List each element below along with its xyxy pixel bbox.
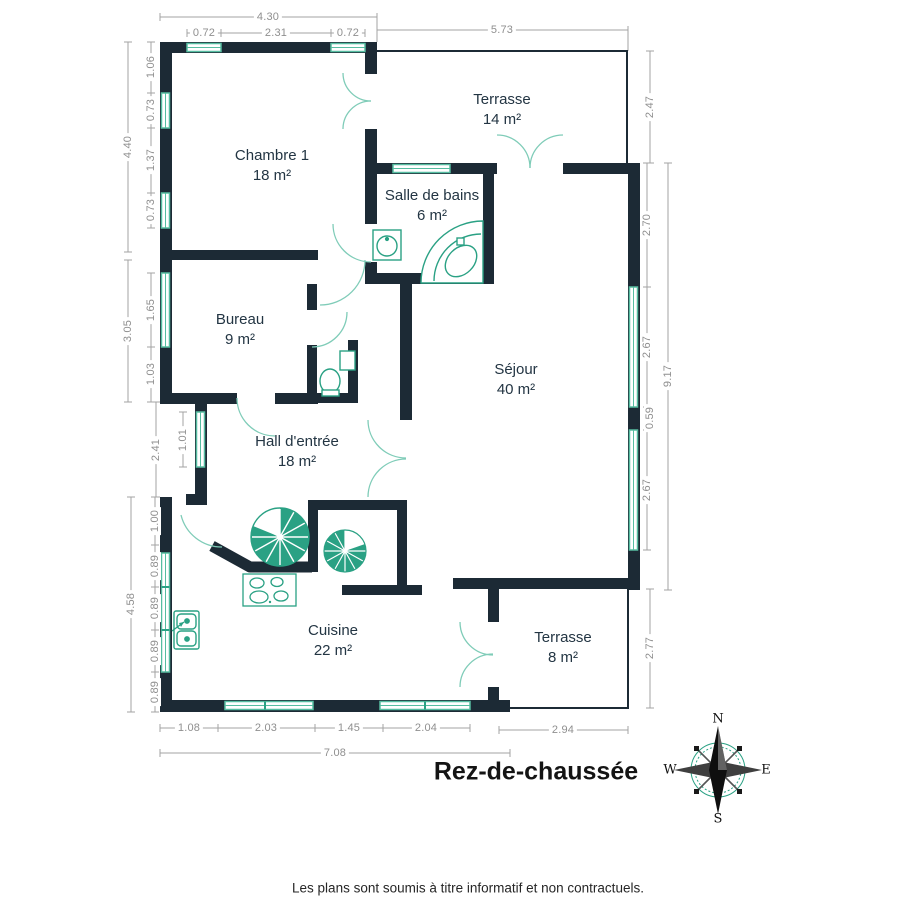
room-label-chambre-1: Chambre 1 18 m²: [235, 146, 309, 187]
room-label-hall-entree: Hall d'entrée 18 m²: [255, 432, 339, 473]
room-name: Chambre 1: [235, 146, 309, 166]
dim-right-seg-0: 2.70: [641, 211, 653, 239]
dim-bottom-overall: 7.08: [321, 747, 349, 759]
compass-label-east: E: [761, 763, 771, 778]
dim-bottom-seg-3: 2.04: [412, 722, 440, 734]
room-area: 14 m²: [473, 110, 531, 130]
spiral-staircase-large-icon: [251, 508, 309, 566]
door-arc: [343, 101, 371, 129]
room-area: 8 m²: [534, 648, 592, 668]
door-arc: [320, 260, 365, 305]
dim-left-lower-seg-2: 0.89: [149, 594, 161, 622]
room-area: 18 m²: [235, 166, 309, 186]
door-arc: [368, 459, 406, 497]
spiral-staircase-small-icon: [324, 530, 366, 572]
room-name: Cuisine: [308, 621, 358, 641]
page-title: Rez-de-chaussée: [434, 758, 638, 787]
dim-right-seg-2: 0.59: [644, 404, 656, 432]
room-label-cuisine: Cuisine 22 m²: [308, 621, 358, 662]
windows-layer: [162, 44, 638, 710]
dim-left-lower-seg-1: 0.89: [149, 552, 161, 580]
dim-left-upper-seg-0: 1.06: [145, 53, 157, 81]
door-arc: [312, 312, 347, 347]
room-name: Terrasse: [473, 90, 531, 110]
room-name: Séjour: [494, 360, 537, 380]
door-arc: [368, 420, 406, 458]
bathtub-icon: [421, 221, 483, 283]
dim-right-seg-1: 2.67: [641, 333, 653, 361]
bathroom-sink-icon: [373, 230, 401, 260]
wall-layer: [160, 42, 640, 712]
room-area: 22 m²: [308, 641, 358, 661]
room-area: 18 m²: [255, 452, 339, 472]
dim-top-seg-0: 0.72: [190, 27, 218, 39]
dim-right-terrace-top: 2.47: [644, 93, 656, 121]
dim-left-upper-seg-2: 1.37: [145, 146, 157, 174]
room-name: Salle de bains: [385, 186, 479, 206]
dim-bottom-terrace: 2.94: [549, 724, 577, 736]
dim-left-lower-seg-0: 1.00: [149, 507, 161, 535]
dim-left-hall: 2.41: [150, 436, 162, 464]
room-label-terrasse-8: Terrasse 8 m²: [534, 628, 592, 669]
door-arc: [343, 73, 371, 101]
dim-left-mid-seg-1: 1.03: [145, 360, 157, 388]
room-area: 6 m²: [385, 206, 479, 226]
dim-left-lower-seg-3: 0.89: [149, 637, 161, 665]
dim-right-seg-3: 2.67: [641, 476, 653, 504]
dim-left-mid-seg-0: 1.65: [145, 296, 157, 324]
compass-label-west: W: [663, 763, 676, 778]
disclaimer-text: Les plans sont soumis à titre informatif…: [292, 881, 644, 896]
compass-label-south: S: [714, 812, 723, 827]
dim-left-hall-window: 1.01: [177, 426, 189, 454]
door-arc: [460, 654, 493, 687]
kitchen-sink-icon: [172, 611, 199, 649]
door-arc: [497, 135, 530, 168]
dim-left-lower-seg-4: 0.89: [149, 678, 161, 706]
dim-right-terrace-bottom: 2.77: [644, 634, 656, 662]
compass-label-north: N: [712, 712, 723, 727]
dim-left-mid-overall: 3.05: [122, 317, 134, 345]
room-name: Hall d'entrée: [255, 432, 339, 452]
door-arc: [333, 224, 371, 262]
room-area: 9 m²: [216, 330, 264, 350]
dim-left-upper-overall: 4.40: [122, 133, 134, 161]
dim-right-overall: 9.17: [662, 362, 674, 390]
dim-bottom-seg-2: 1.45: [335, 722, 363, 734]
door-arc: [460, 622, 493, 655]
room-label-salle-de-bains: Salle de bains 6 m²: [385, 186, 479, 227]
dim-bottom-seg-0: 1.08: [175, 722, 203, 734]
dim-top-overall: 4.30: [254, 11, 282, 23]
cooktop-icon: [243, 574, 296, 606]
room-label-terrasse-14: Terrasse 14 m²: [473, 90, 531, 131]
door-arc: [530, 135, 563, 168]
room-area: 40 m²: [494, 380, 537, 400]
dim-left-upper-seg-1: 0.73: [145, 96, 157, 124]
door-arc: [237, 398, 275, 436]
dim-left-upper-seg-3: 0.73: [145, 196, 157, 224]
floor-plan-page: Chambre 1 18 m² Terrasse 14 m² Salle de …: [0, 0, 900, 900]
room-name: Terrasse: [534, 628, 592, 648]
dim-top-seg-1: 2.31: [262, 27, 290, 39]
dim-top-terrace: 5.73: [488, 24, 516, 36]
dim-left-lower-overall: 4.58: [125, 590, 137, 618]
room-name: Bureau: [216, 310, 264, 330]
dim-bottom-seg-1: 2.03: [252, 722, 280, 734]
room-label-bureau: Bureau 9 m²: [216, 310, 264, 351]
compass-rose-icon: [674, 726, 762, 814]
room-label-sejour: Séjour 40 m²: [494, 360, 537, 401]
dim-top-seg-2: 0.72: [334, 27, 362, 39]
